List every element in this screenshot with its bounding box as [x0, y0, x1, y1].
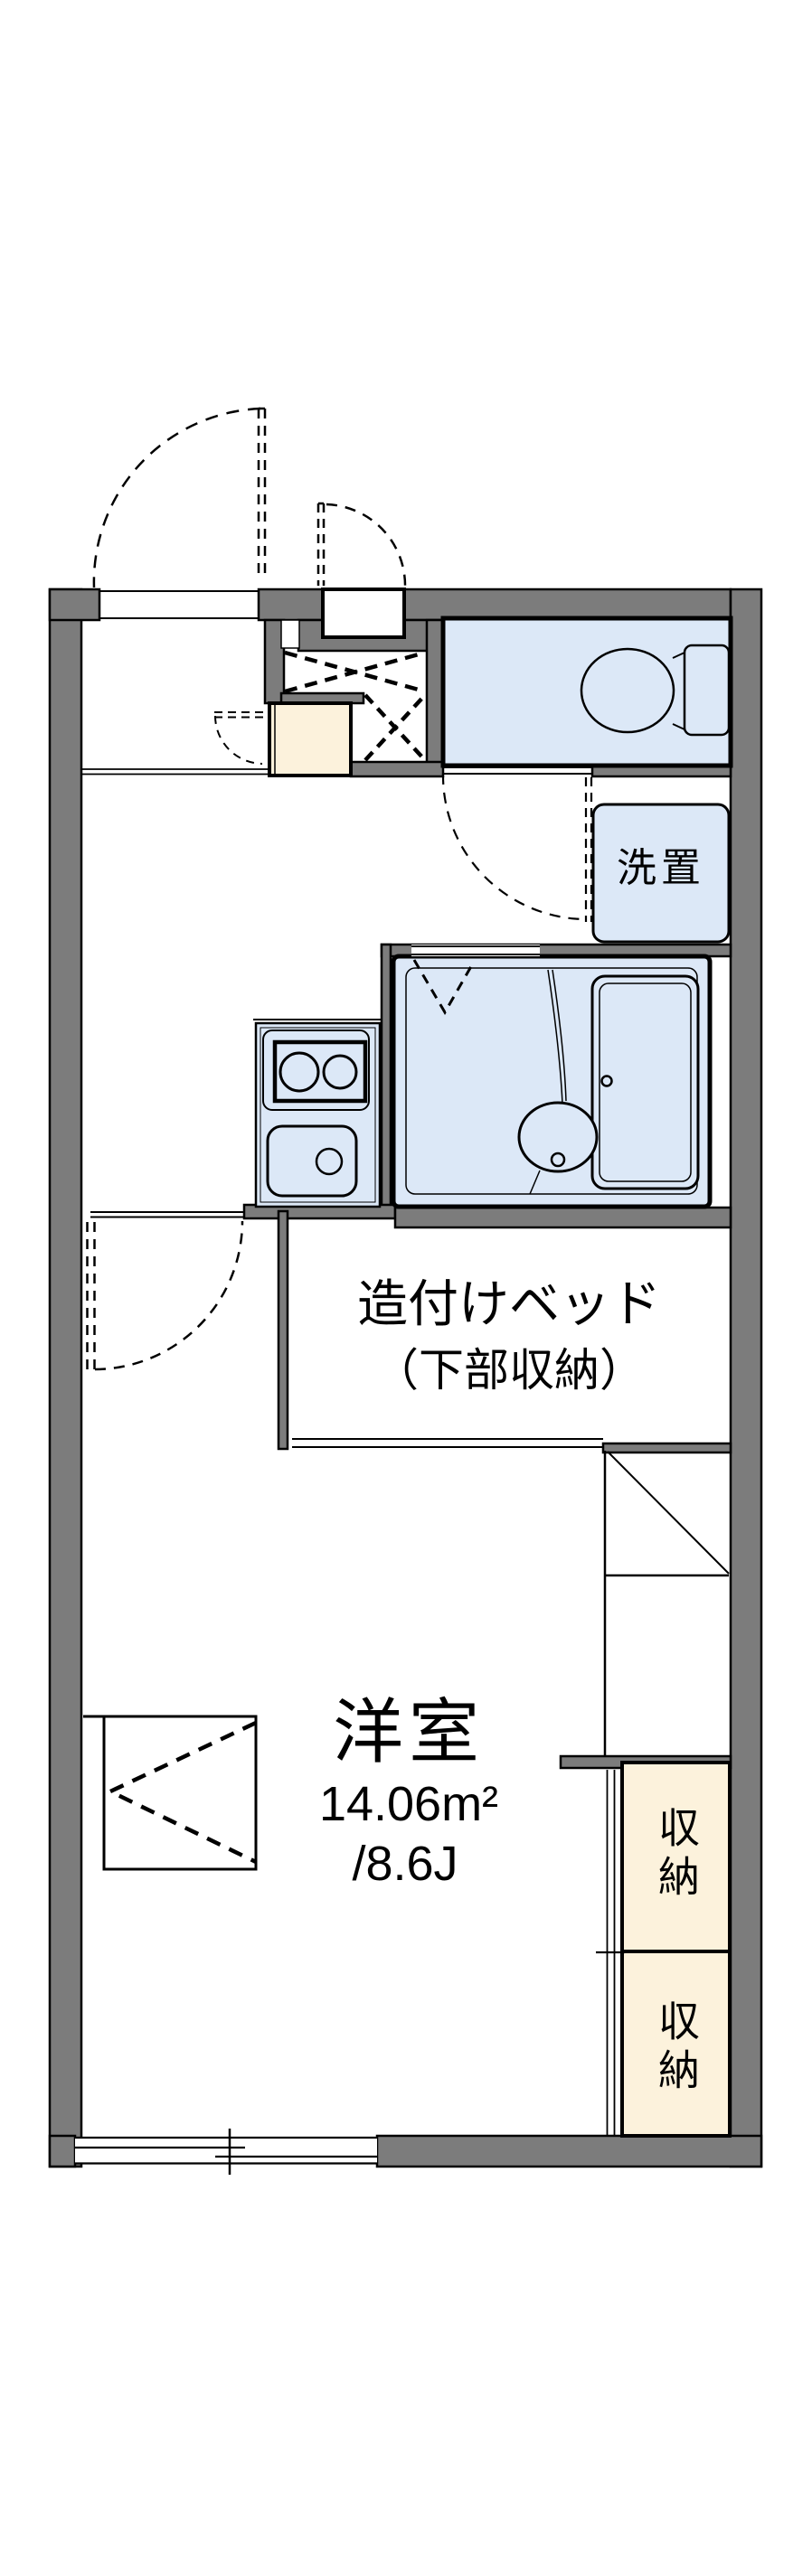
- step-edge-line: [81, 769, 269, 775]
- entrance-threshold: [99, 591, 259, 618]
- kitchen-door-threshold: [90, 1212, 244, 1217]
- toilet-door-threshold: [443, 767, 592, 774]
- wall-bottom-left-segment: [50, 2136, 75, 2167]
- exterior-door-box: [323, 589, 404, 637]
- wall-kitchen-bath: [382, 945, 391, 1212]
- toilet-tank: [685, 645, 729, 735]
- exterior-closet-door-arc: [326, 504, 405, 588]
- toilet-door-leaf: [586, 777, 591, 922]
- wall-top-left-segment: [50, 589, 99, 620]
- wall-top-mid-segment: [259, 589, 323, 620]
- wall-storage-right: [427, 620, 443, 764]
- entrance-step: [269, 703, 351, 776]
- column-diagonal: [608, 1452, 729, 1574]
- main-room-size-label: /8.6J: [352, 1839, 458, 1888]
- exterior-closet-door-leaf: [318, 503, 324, 586]
- bathtub-faucet: [602, 1076, 612, 1086]
- wall-bath-south: [395, 1208, 731, 1227]
- built-in-bed-label: 造付けベッド: [357, 1279, 661, 1330]
- wall-bed-divider: [603, 1443, 731, 1453]
- wall-left: [50, 589, 81, 2167]
- main-room-label: 洋室: [333, 1697, 485, 1767]
- storage-wall-slit: [281, 620, 299, 648]
- bottom-window: [75, 2137, 377, 2164]
- entrance-door-leaf: [259, 409, 265, 578]
- bath-basin-drain: [552, 1153, 564, 1166]
- wall-bottom-right-segment: [377, 2136, 761, 2167]
- main-room-door-leaf: [88, 1222, 95, 1370]
- wall-storage-bottom-band: [351, 762, 443, 776]
- hall-door-arc: [215, 716, 262, 764]
- hall-door-leaf: [214, 712, 265, 718]
- built-in-bed-sublabel: （下部収納）: [373, 1348, 645, 1393]
- wall-top-right-segment: [404, 589, 731, 620]
- entrance-door-arc: [94, 409, 260, 588]
- storage-lower-label: 収納: [656, 1999, 697, 2097]
- storage-upper-label: 収納: [656, 1806, 697, 1904]
- main-room-door-arc: [95, 1221, 242, 1369]
- wall-right: [731, 589, 761, 2167]
- toilet-bowl: [581, 649, 674, 732]
- main-room-area-label: 14.06m²: [319, 1780, 498, 1829]
- laundry-label: 洗置: [617, 849, 705, 888]
- table-box: [104, 1716, 256, 1869]
- toilet-door-arc: [443, 774, 585, 919]
- storage-x-lower: [365, 695, 425, 760]
- floorplan: 洋室 14.06m² /8.6J 造付けベッド （下部収納） 洗置 収納 収納: [0, 0, 812, 2576]
- wall-bed-stub: [279, 1211, 288, 1449]
- storage-x-upper: [285, 653, 425, 691]
